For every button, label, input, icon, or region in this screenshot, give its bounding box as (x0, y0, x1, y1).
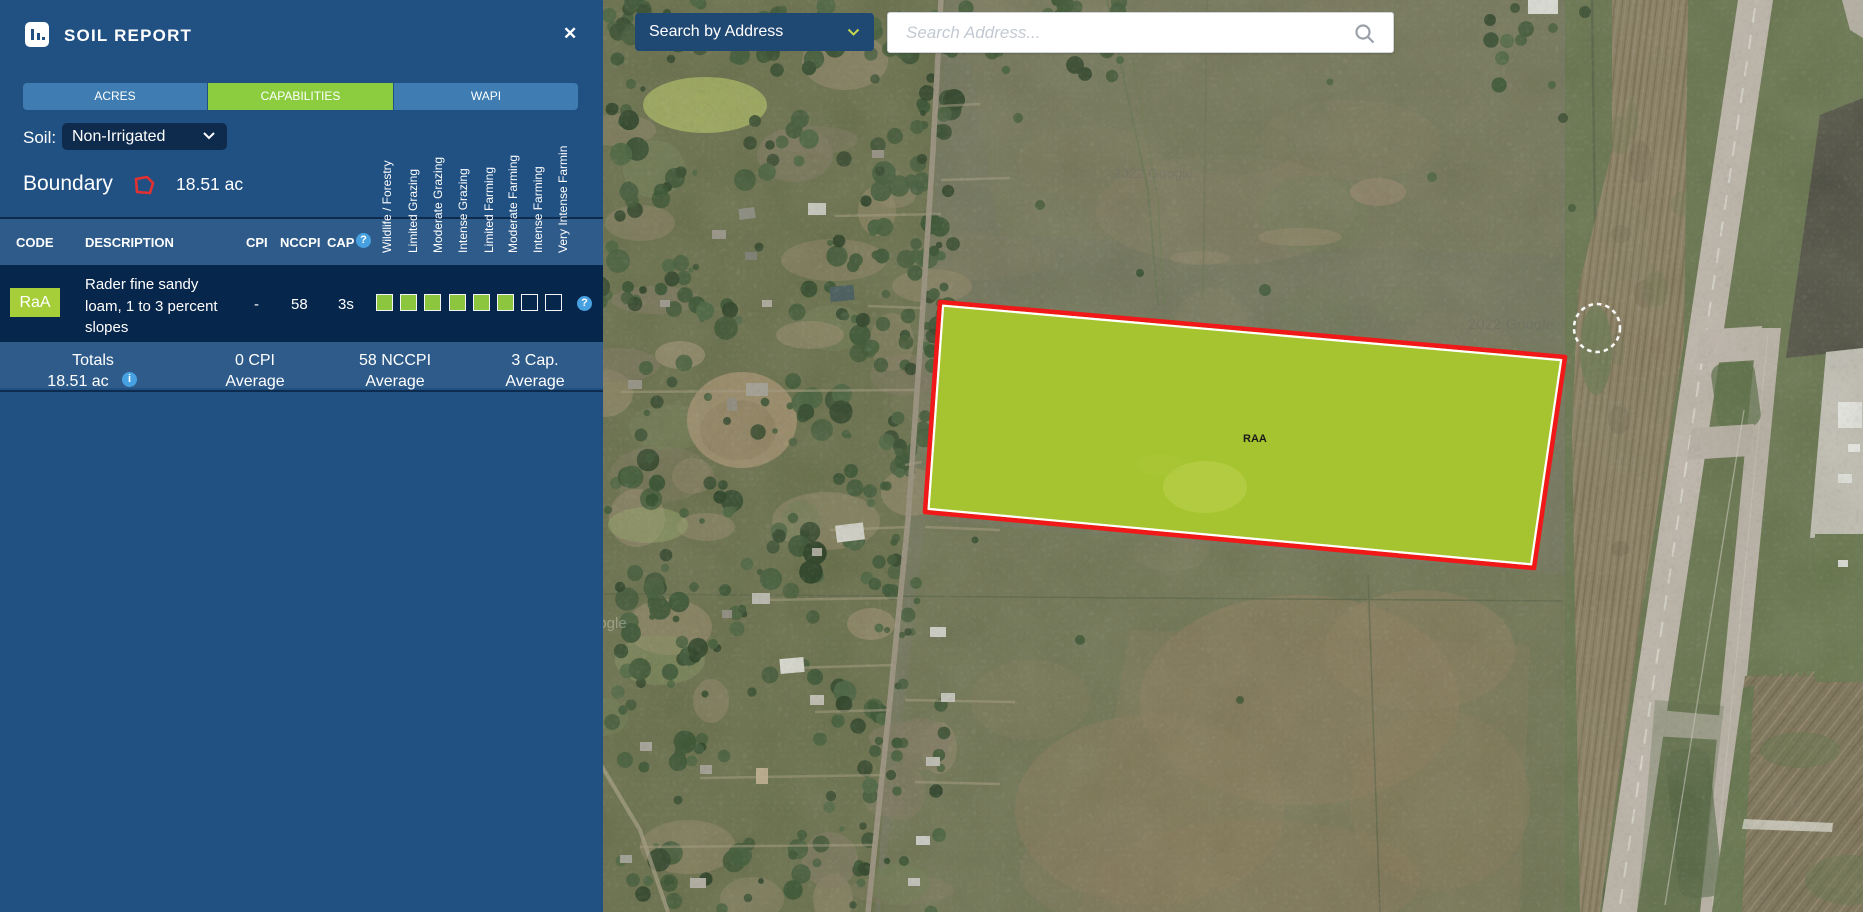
svg-text:2022 Google: 2022 Google (1113, 165, 1193, 181)
svg-text:RAA: RAA (1243, 433, 1267, 445)
svg-text:oogle: oogle (603, 615, 627, 632)
svg-text:2022 Google: 2022 Google (1468, 316, 1554, 333)
